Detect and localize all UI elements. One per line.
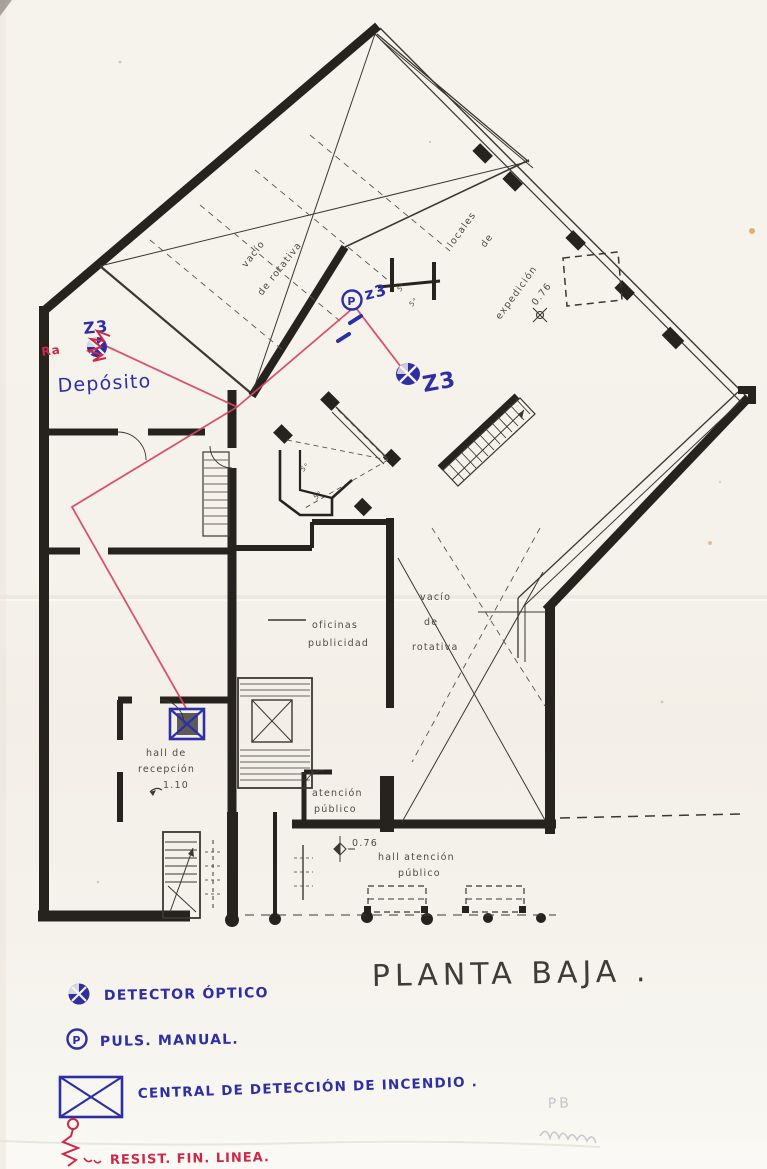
zone-marker: z3 bbox=[362, 280, 389, 304]
room-label: recepción bbox=[138, 764, 195, 775]
scanned-floor-plan: vacío de rotativa locales de expedición … bbox=[0, 0, 767, 1169]
middle-rooms: 5° 5° bbox=[273, 391, 401, 516]
stair-arrow bbox=[518, 410, 524, 419]
benches bbox=[364, 886, 526, 913]
wall-block bbox=[380, 776, 394, 832]
hand-annotations: Z3 Ra Depósito P z3 Z3 bbox=[40, 280, 458, 739]
optical-detector-symbol bbox=[396, 363, 420, 385]
control-panel-symbol bbox=[170, 709, 204, 739]
pencil-notes: PB bbox=[540, 1095, 596, 1143]
side-stair bbox=[203, 452, 229, 536]
room-label: hall de bbox=[146, 748, 186, 759]
deposito-label: Depósito bbox=[57, 370, 152, 397]
floor-plan-outer-walls bbox=[38, 26, 752, 920]
manual-call-point-symbol: P bbox=[343, 291, 362, 310]
room-label: público bbox=[398, 868, 441, 879]
diagonal-staircase bbox=[440, 392, 742, 662]
room-label: vacío bbox=[240, 239, 268, 270]
bottom-hall bbox=[163, 812, 556, 927]
printed-labels: oficinas publicidad hall de recepción 1.… bbox=[138, 620, 455, 879]
floor-plan-svg: vacío de rotativa locales de expedición … bbox=[0, 0, 767, 1169]
legend-manual-call-point-icon: P bbox=[68, 1030, 87, 1049]
room-label: expedición bbox=[494, 264, 540, 322]
legend-control-panel-icon bbox=[60, 1077, 122, 1117]
room-label: vacío bbox=[420, 592, 451, 603]
room-number: 5° bbox=[312, 490, 324, 502]
level-label: 0.76 bbox=[530, 281, 555, 308]
legend-optical-detector-icon bbox=[69, 984, 90, 1005]
room-label: de bbox=[424, 617, 438, 628]
elevator-stair-block bbox=[238, 678, 312, 788]
svg-text:P: P bbox=[72, 1034, 81, 1047]
stair-shaft bbox=[163, 832, 200, 918]
room-label: atención bbox=[312, 788, 363, 799]
column bbox=[225, 913, 239, 927]
resistor-label: Ra bbox=[40, 342, 61, 359]
paper-crease bbox=[0, 595, 767, 599]
page-title: PLANTA BAJA . bbox=[372, 954, 651, 994]
legend-label: PULS. MANUAL. bbox=[100, 1032, 239, 1050]
stair-treads bbox=[240, 684, 310, 780]
legend-label: DETECTOR ÓPTICO bbox=[104, 983, 269, 1004]
room-label: rotativa bbox=[412, 642, 458, 653]
zone-marker: Z3 bbox=[421, 367, 459, 397]
room-label: publicidad bbox=[308, 638, 369, 649]
room-label: locales bbox=[446, 210, 479, 250]
lower-void: vacío de rotativa bbox=[398, 528, 546, 822]
dashed-enclosure bbox=[563, 252, 622, 306]
level-label: 1.10 bbox=[163, 780, 189, 791]
level-marker-icon bbox=[533, 308, 547, 322]
dashed-boundary-right bbox=[560, 814, 742, 818]
paper-speck bbox=[749, 228, 755, 234]
void-railing bbox=[518, 392, 738, 598]
svg-text:P: P bbox=[347, 295, 356, 308]
legend-label: RESIST. FIN. LINEA. bbox=[110, 1150, 270, 1168]
blue-tick bbox=[350, 316, 361, 323]
locales-corridor: locales de expedición 0.76 5° 5° bbox=[378, 210, 622, 322]
faint-note: PB bbox=[548, 1095, 573, 1112]
wall-right-diagonal bbox=[546, 398, 748, 610]
legend-label: CENTRAL DE DETECCIÓN DE INCENDIO . bbox=[138, 1072, 479, 1102]
small-room-walls bbox=[280, 450, 352, 515]
stair-treads bbox=[449, 398, 530, 480]
interior-walls bbox=[48, 390, 394, 920]
level-label: 0.76 bbox=[352, 838, 378, 849]
room-label: oficinas bbox=[312, 620, 358, 631]
blue-tick bbox=[338, 334, 349, 341]
room-label: público bbox=[314, 804, 357, 815]
column-wall bbox=[227, 812, 238, 918]
room-label: hall atención bbox=[378, 852, 455, 863]
room-label: de bbox=[479, 232, 496, 250]
room-number: 5° bbox=[408, 296, 420, 308]
door-arc bbox=[118, 432, 146, 460]
